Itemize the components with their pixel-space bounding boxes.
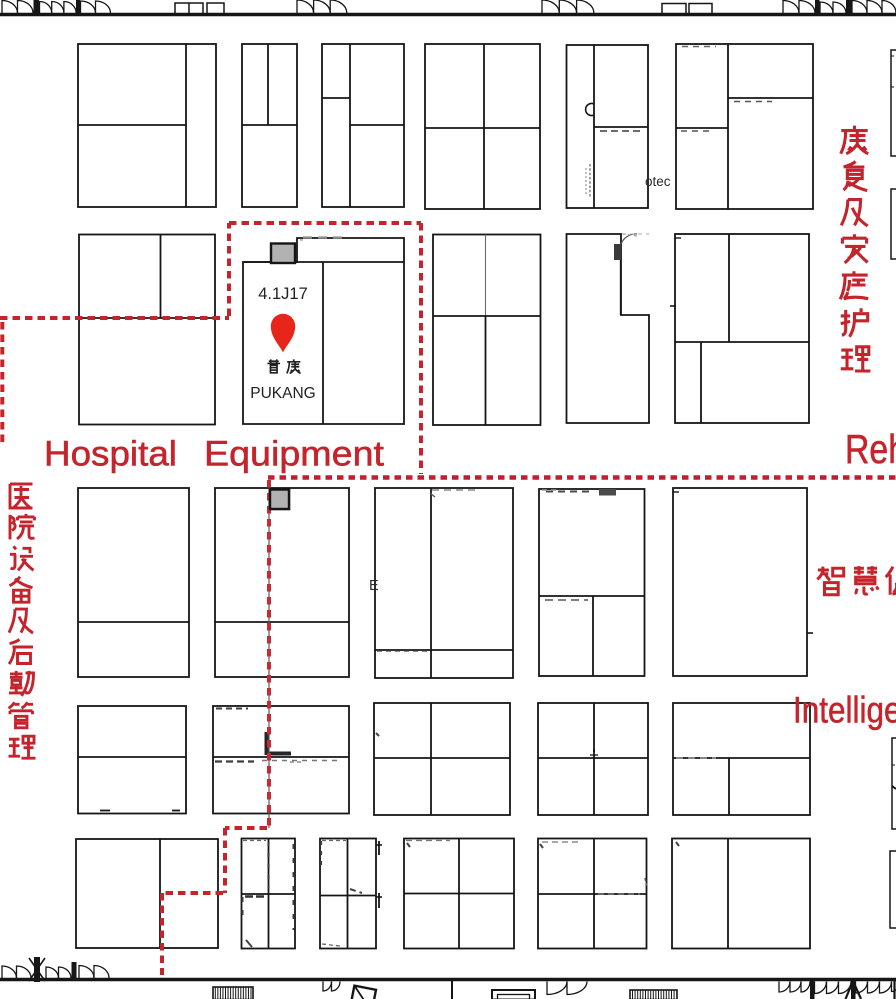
svg-text:E: E xyxy=(369,578,379,594)
svg-text:Hospital: Hospital xyxy=(44,434,177,474)
svg-text:Intelligen: Intelligen xyxy=(793,690,896,731)
svg-text:Equipment: Equipment xyxy=(204,434,384,474)
svg-text:otec: otec xyxy=(645,174,671,189)
svg-text:4.1J17: 4.1J17 xyxy=(258,285,308,303)
svg-text:PUKANG: PUKANG xyxy=(250,385,315,402)
svg-text:Reh: Reh xyxy=(845,426,896,472)
